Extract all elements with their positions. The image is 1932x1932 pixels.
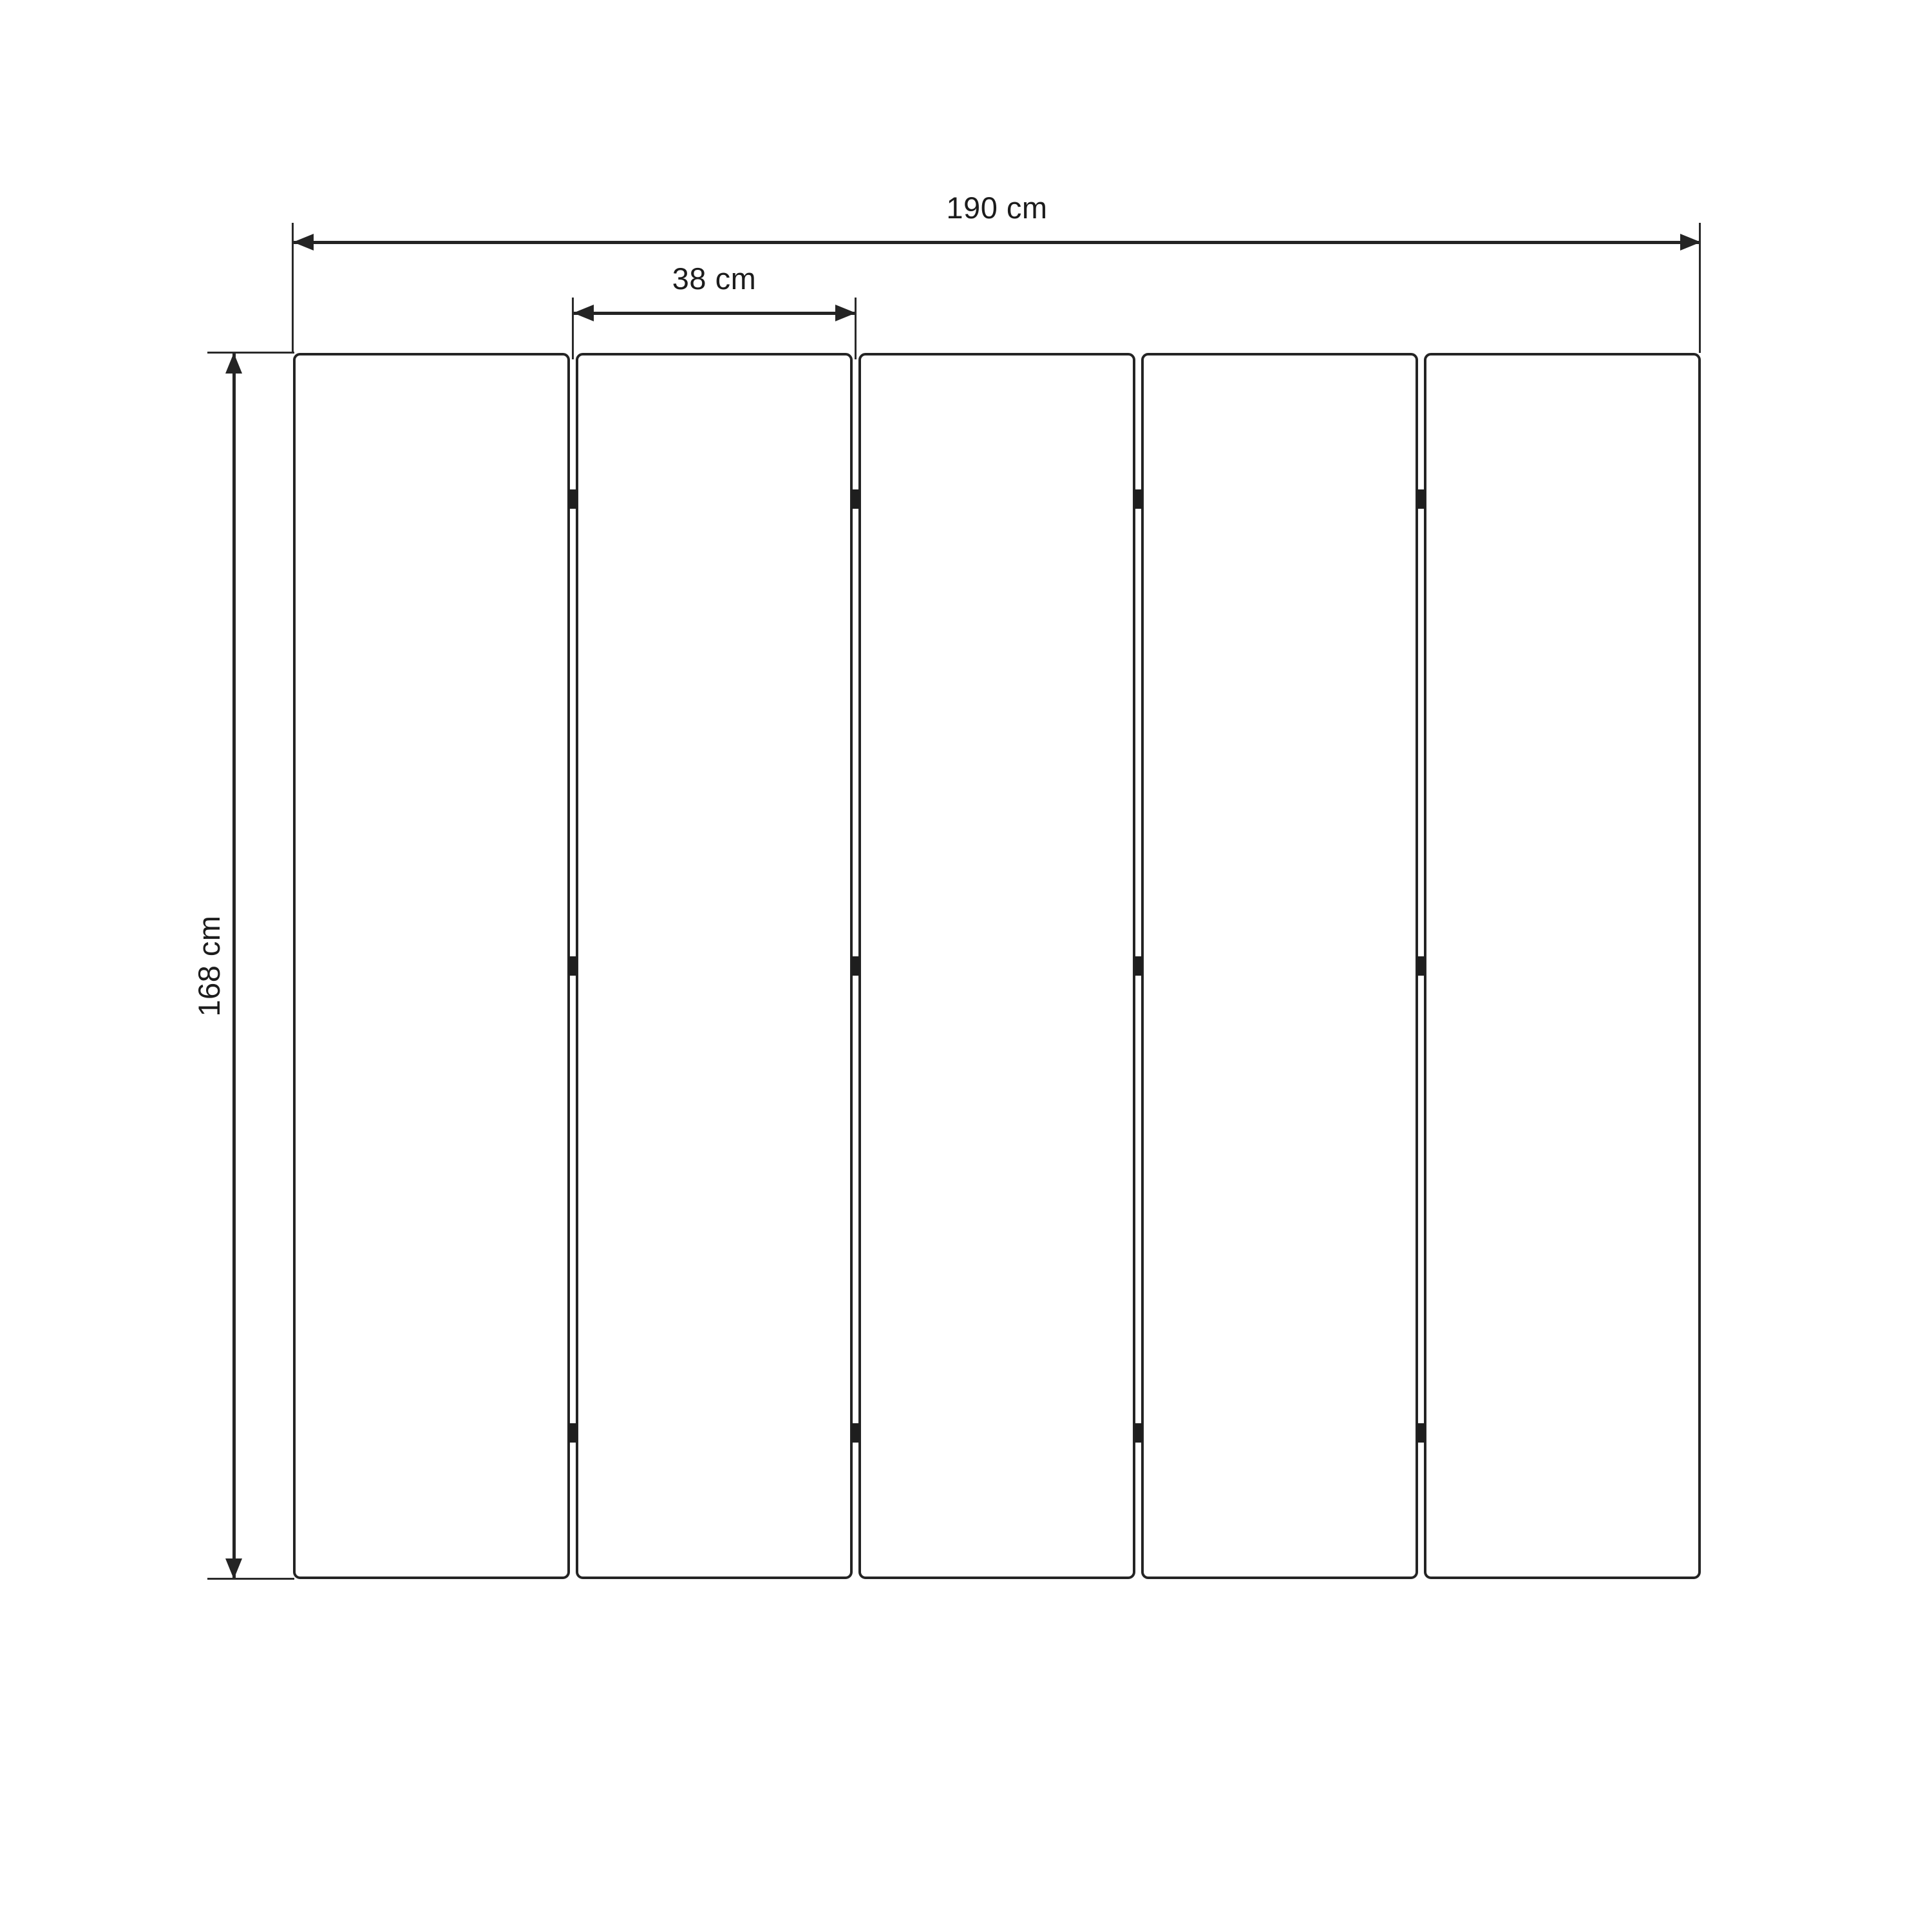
hinge-mark [1417, 489, 1425, 509]
height-dimension-line [232, 353, 236, 1579]
hinge-mark [569, 956, 577, 976]
total-width-dimension-line [293, 241, 1701, 244]
hinge-mark [851, 489, 860, 509]
extension-line [855, 298, 857, 359]
hinge-mark [851, 1423, 860, 1443]
hinge-mark [1134, 489, 1142, 509]
panel-2 [576, 353, 853, 1579]
panel-1 [293, 353, 570, 1579]
panel-3 [858, 353, 1135, 1579]
panel-group [293, 353, 1701, 1579]
hinge-mark [569, 489, 577, 509]
height-label: 168 cm [194, 869, 225, 1063]
panel-width-label: 38 cm [553, 263, 875, 294]
hinge-mark [1417, 1423, 1425, 1443]
extension-line [572, 298, 574, 359]
arrow-down-icon [225, 1558, 242, 1579]
panel-5 [1424, 353, 1701, 1579]
panel-4 [1141, 353, 1418, 1579]
hinge-mark [851, 956, 860, 976]
extension-line [292, 223, 294, 353]
extension-line [1699, 223, 1701, 353]
panel-width-dimension-line [573, 312, 856, 315]
hinge-mark [569, 1423, 577, 1443]
extension-line [207, 1578, 294, 1580]
extension-line [207, 352, 294, 354]
hinge-mark [1134, 1423, 1142, 1443]
hinge-mark [1417, 956, 1425, 976]
dimension-drawing: 190 cm 38 cm 168 cm [0, 0, 1932, 1932]
total-width-label: 190 cm [836, 193, 1158, 223]
arrow-right-icon [835, 305, 856, 321]
hinge-mark [1134, 956, 1142, 976]
arrow-right-icon [1680, 234, 1701, 251]
arrow-up-icon [225, 353, 242, 374]
arrow-left-icon [573, 305, 594, 321]
arrow-left-icon [293, 234, 314, 251]
